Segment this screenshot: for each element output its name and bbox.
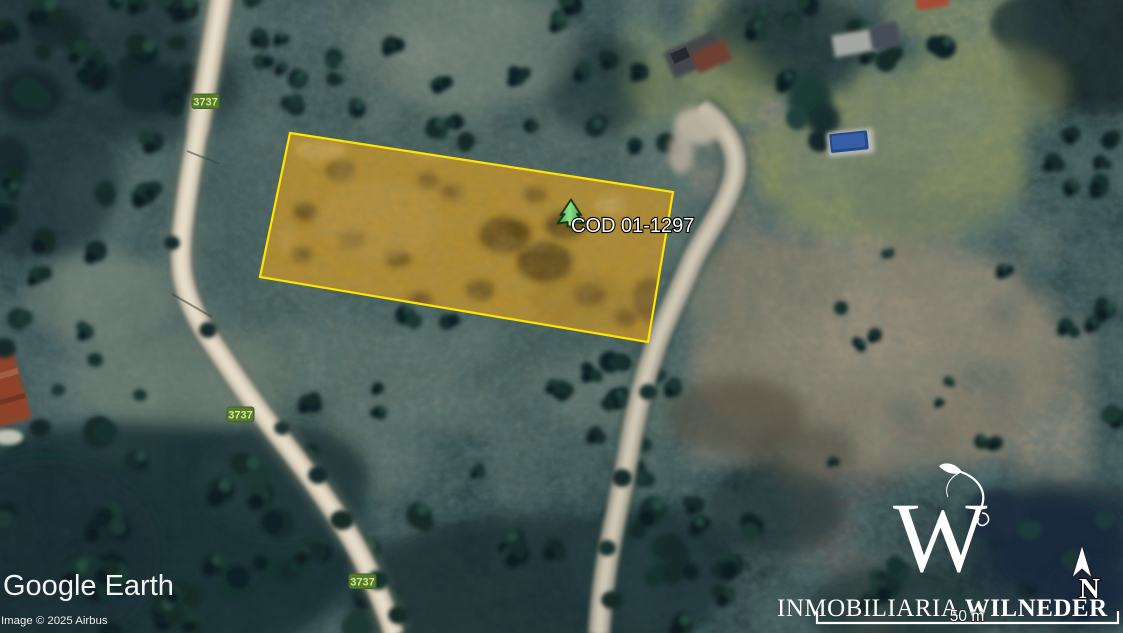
svg-text:50 m: 50 m xyxy=(950,608,984,625)
svg-text:Image © 2025 Airbus: Image © 2025 Airbus xyxy=(1,615,108,627)
svg-text:3737: 3737 xyxy=(228,410,252,422)
svg-text:COD 01-1297: COD 01-1297 xyxy=(571,215,694,237)
svg-text:Google Earth: Google Earth xyxy=(3,570,174,602)
svg-text:INMOBILIARIA WILNEDER: INMOBILIARIA WILNEDER xyxy=(777,595,1108,622)
svg-text:W: W xyxy=(893,482,988,593)
svg-text:3737: 3737 xyxy=(193,97,217,109)
svg-text:N: N xyxy=(1079,573,1100,605)
svg-text:3737: 3737 xyxy=(350,577,374,589)
